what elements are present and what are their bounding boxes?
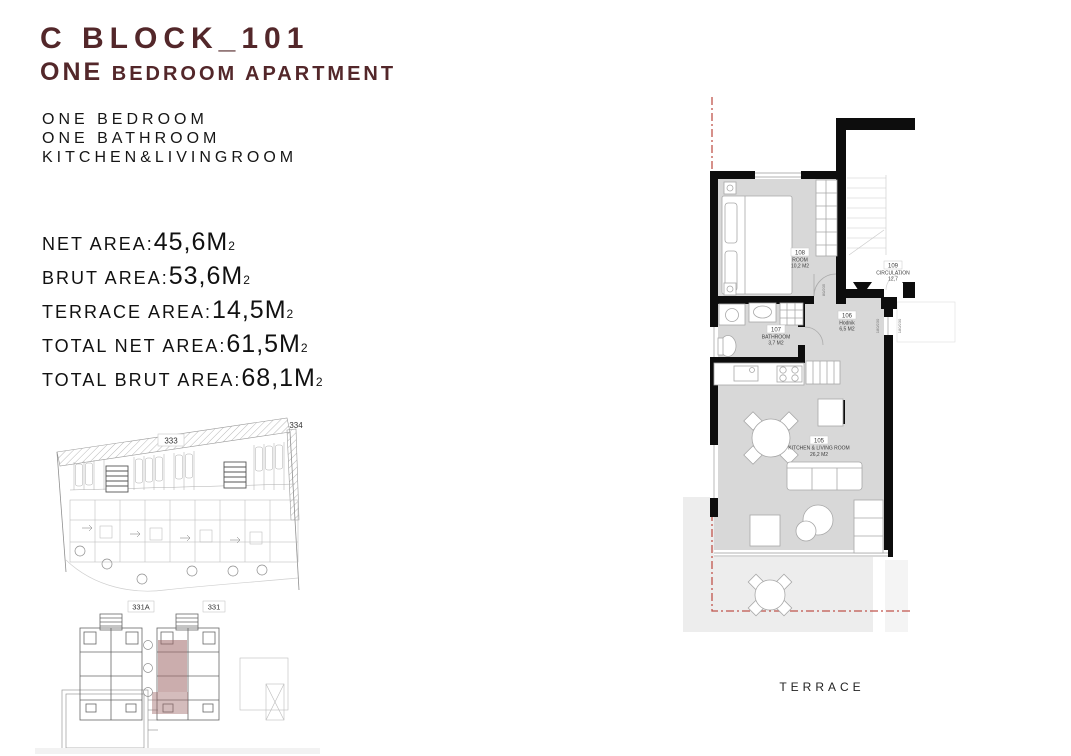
parcel-edge-left	[57, 452, 66, 572]
interior-steps	[806, 361, 840, 384]
parked-car	[136, 459, 143, 483]
terrace-table	[755, 580, 785, 610]
tree	[144, 664, 153, 673]
tree	[137, 574, 147, 584]
parked-car	[86, 463, 93, 485]
tree	[228, 566, 238, 576]
direction-arrow	[130, 531, 140, 537]
pool	[62, 690, 158, 752]
window-hallway	[884, 317, 893, 335]
room-area: 10,2 M2	[791, 264, 809, 270]
building-label-331: 331	[208, 603, 221, 612]
highlighted-unit-terrace	[152, 692, 188, 714]
wall-bathroom-right-lower	[798, 345, 805, 363]
dining-table	[752, 419, 790, 457]
room-area: 12,7	[888, 277, 898, 283]
room-label-108: 108 ROOM 10,2 M2	[791, 248, 809, 270]
drawing-layer: 108 ROOM 10,2 M2 109 CIRCULATION 12,7 10…	[0, 0, 1071, 756]
tree	[257, 565, 267, 575]
road-strip-right	[287, 429, 299, 520]
terrace-side-strip	[885, 560, 908, 632]
window-size-label: 180/230	[875, 318, 880, 333]
window-size-label: 180/230	[897, 318, 902, 333]
circulation-stairs	[847, 175, 886, 255]
window-bedroom	[755, 171, 801, 179]
neighbor-structure	[240, 658, 288, 720]
coffee-table	[750, 515, 780, 546]
parked-car	[186, 454, 193, 478]
wall-entry-stub	[881, 297, 897, 309]
wall-bedroom-top-right	[800, 171, 838, 179]
tree	[144, 641, 153, 650]
armchair-ottoman	[796, 521, 816, 541]
parked-car	[266, 446, 273, 470]
room-label-106: 106 Hodnik 6,5 M2	[838, 311, 856, 333]
parked-car	[156, 457, 163, 481]
tree	[187, 566, 197, 576]
wall-top-right	[843, 118, 915, 130]
garage-stair-cores	[106, 462, 246, 492]
site-plan: 333 334	[35, 418, 320, 754]
landscape	[66, 546, 298, 591]
floor-plan: 108 ROOM 10,2 M2 109 CIRCULATION 12,7 10…	[683, 97, 955, 694]
parked-car	[176, 455, 183, 479]
parcel-label-334: 334	[289, 421, 303, 430]
highlighted-unit	[158, 640, 187, 692]
direction-arrow	[180, 535, 190, 541]
parked-car	[146, 458, 153, 482]
pillow	[725, 203, 737, 243]
road-bottom	[35, 748, 320, 754]
building-331a	[80, 614, 142, 720]
parked-car	[76, 464, 83, 486]
unit-strip	[70, 500, 298, 562]
room-name: KITCHEN & LIVING ROOM	[788, 446, 849, 452]
terrace-caption: TERRACE	[779, 680, 864, 694]
room-number: 108	[795, 251, 806, 257]
room-label-109: 109 CIRCULATION 12,7	[876, 261, 910, 283]
room-number: 106	[842, 314, 853, 320]
room-number: 109	[888, 264, 899, 270]
door-size-label: 80/205	[821, 283, 826, 296]
sofa	[787, 462, 862, 490]
courtyard-trees	[144, 641, 153, 697]
wall-right-main	[884, 335, 893, 557]
parcel-label-333: 333	[164, 437, 178, 446]
kitchen-sink	[734, 366, 758, 381]
circulation-landing	[897, 302, 955, 342]
shower	[780, 303, 803, 325]
tree	[75, 546, 85, 556]
room-area: 3,7 M2	[768, 341, 784, 347]
walk-path	[66, 560, 298, 591]
room-number: 105	[814, 439, 825, 445]
parked-car	[276, 445, 283, 469]
wall-bedroom-right	[836, 118, 846, 304]
wall-left-lower	[710, 498, 718, 517]
building-label-331a: 331A	[132, 603, 150, 612]
parked-car	[256, 447, 263, 471]
room-area: 6,5 M2	[839, 327, 855, 333]
toilet-tank	[718, 338, 723, 355]
fridge	[818, 399, 843, 426]
room-number: 107	[771, 328, 782, 334]
room-area: 26,2 M2	[810, 452, 828, 458]
tv-cabinet	[854, 500, 883, 553]
direction-arrow	[82, 525, 92, 531]
tree	[102, 559, 112, 569]
